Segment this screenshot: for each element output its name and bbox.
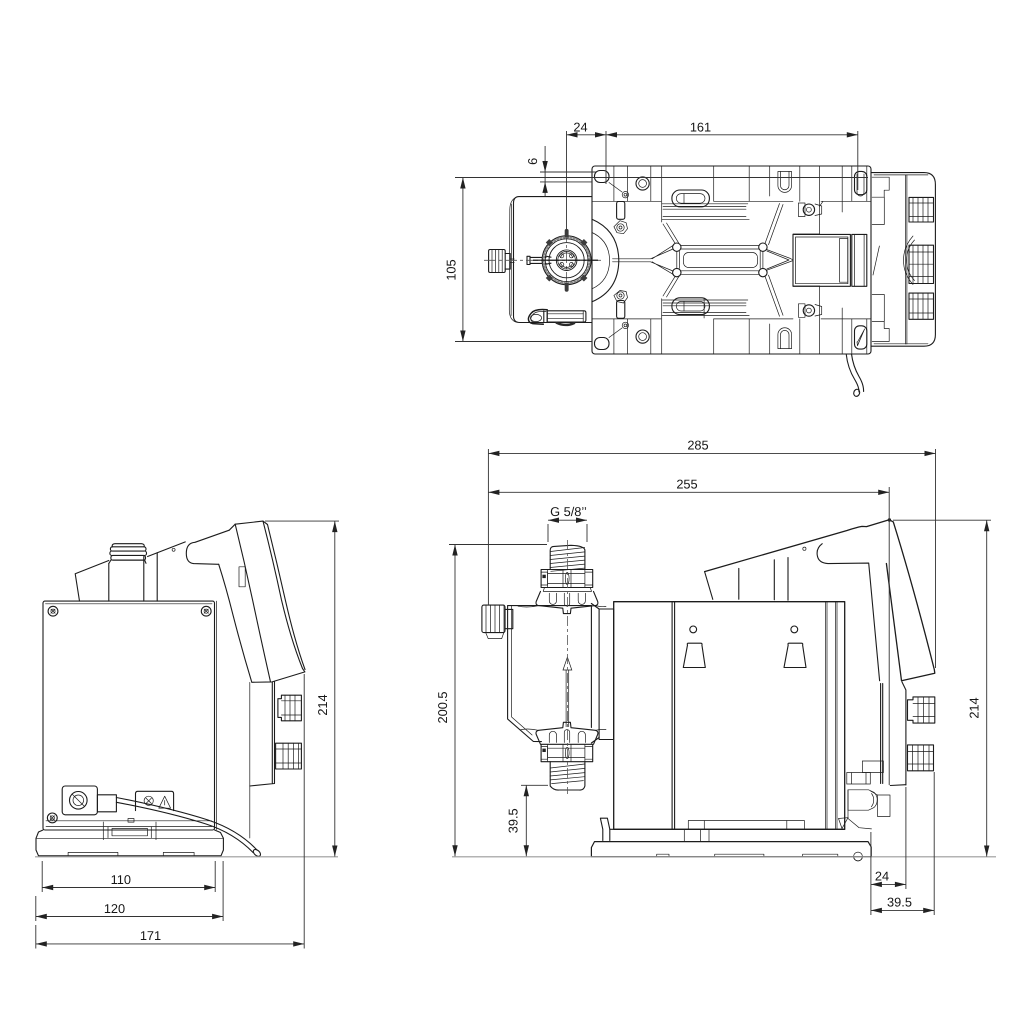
svg-text:105: 105 — [444, 259, 459, 280]
svg-text:285: 285 — [687, 438, 708, 453]
svg-text:G 5/8’’: G 5/8’’ — [550, 504, 587, 519]
svg-text:110: 110 — [111, 872, 131, 887]
svg-text:39.5: 39.5 — [506, 808, 521, 833]
svg-text:6: 6 — [525, 158, 540, 165]
svg-text:255: 255 — [676, 477, 697, 492]
svg-text:171: 171 — [140, 928, 161, 943]
svg-text:24: 24 — [875, 869, 889, 884]
svg-text:214: 214 — [315, 694, 330, 715]
svg-text:161: 161 — [690, 120, 711, 135]
svg-text:39.5: 39.5 — [887, 895, 912, 910]
svg-text:200.5: 200.5 — [435, 691, 450, 723]
svg-text:120: 120 — [104, 901, 125, 916]
svg-text:24: 24 — [573, 120, 587, 135]
svg-text:214: 214 — [967, 697, 982, 718]
